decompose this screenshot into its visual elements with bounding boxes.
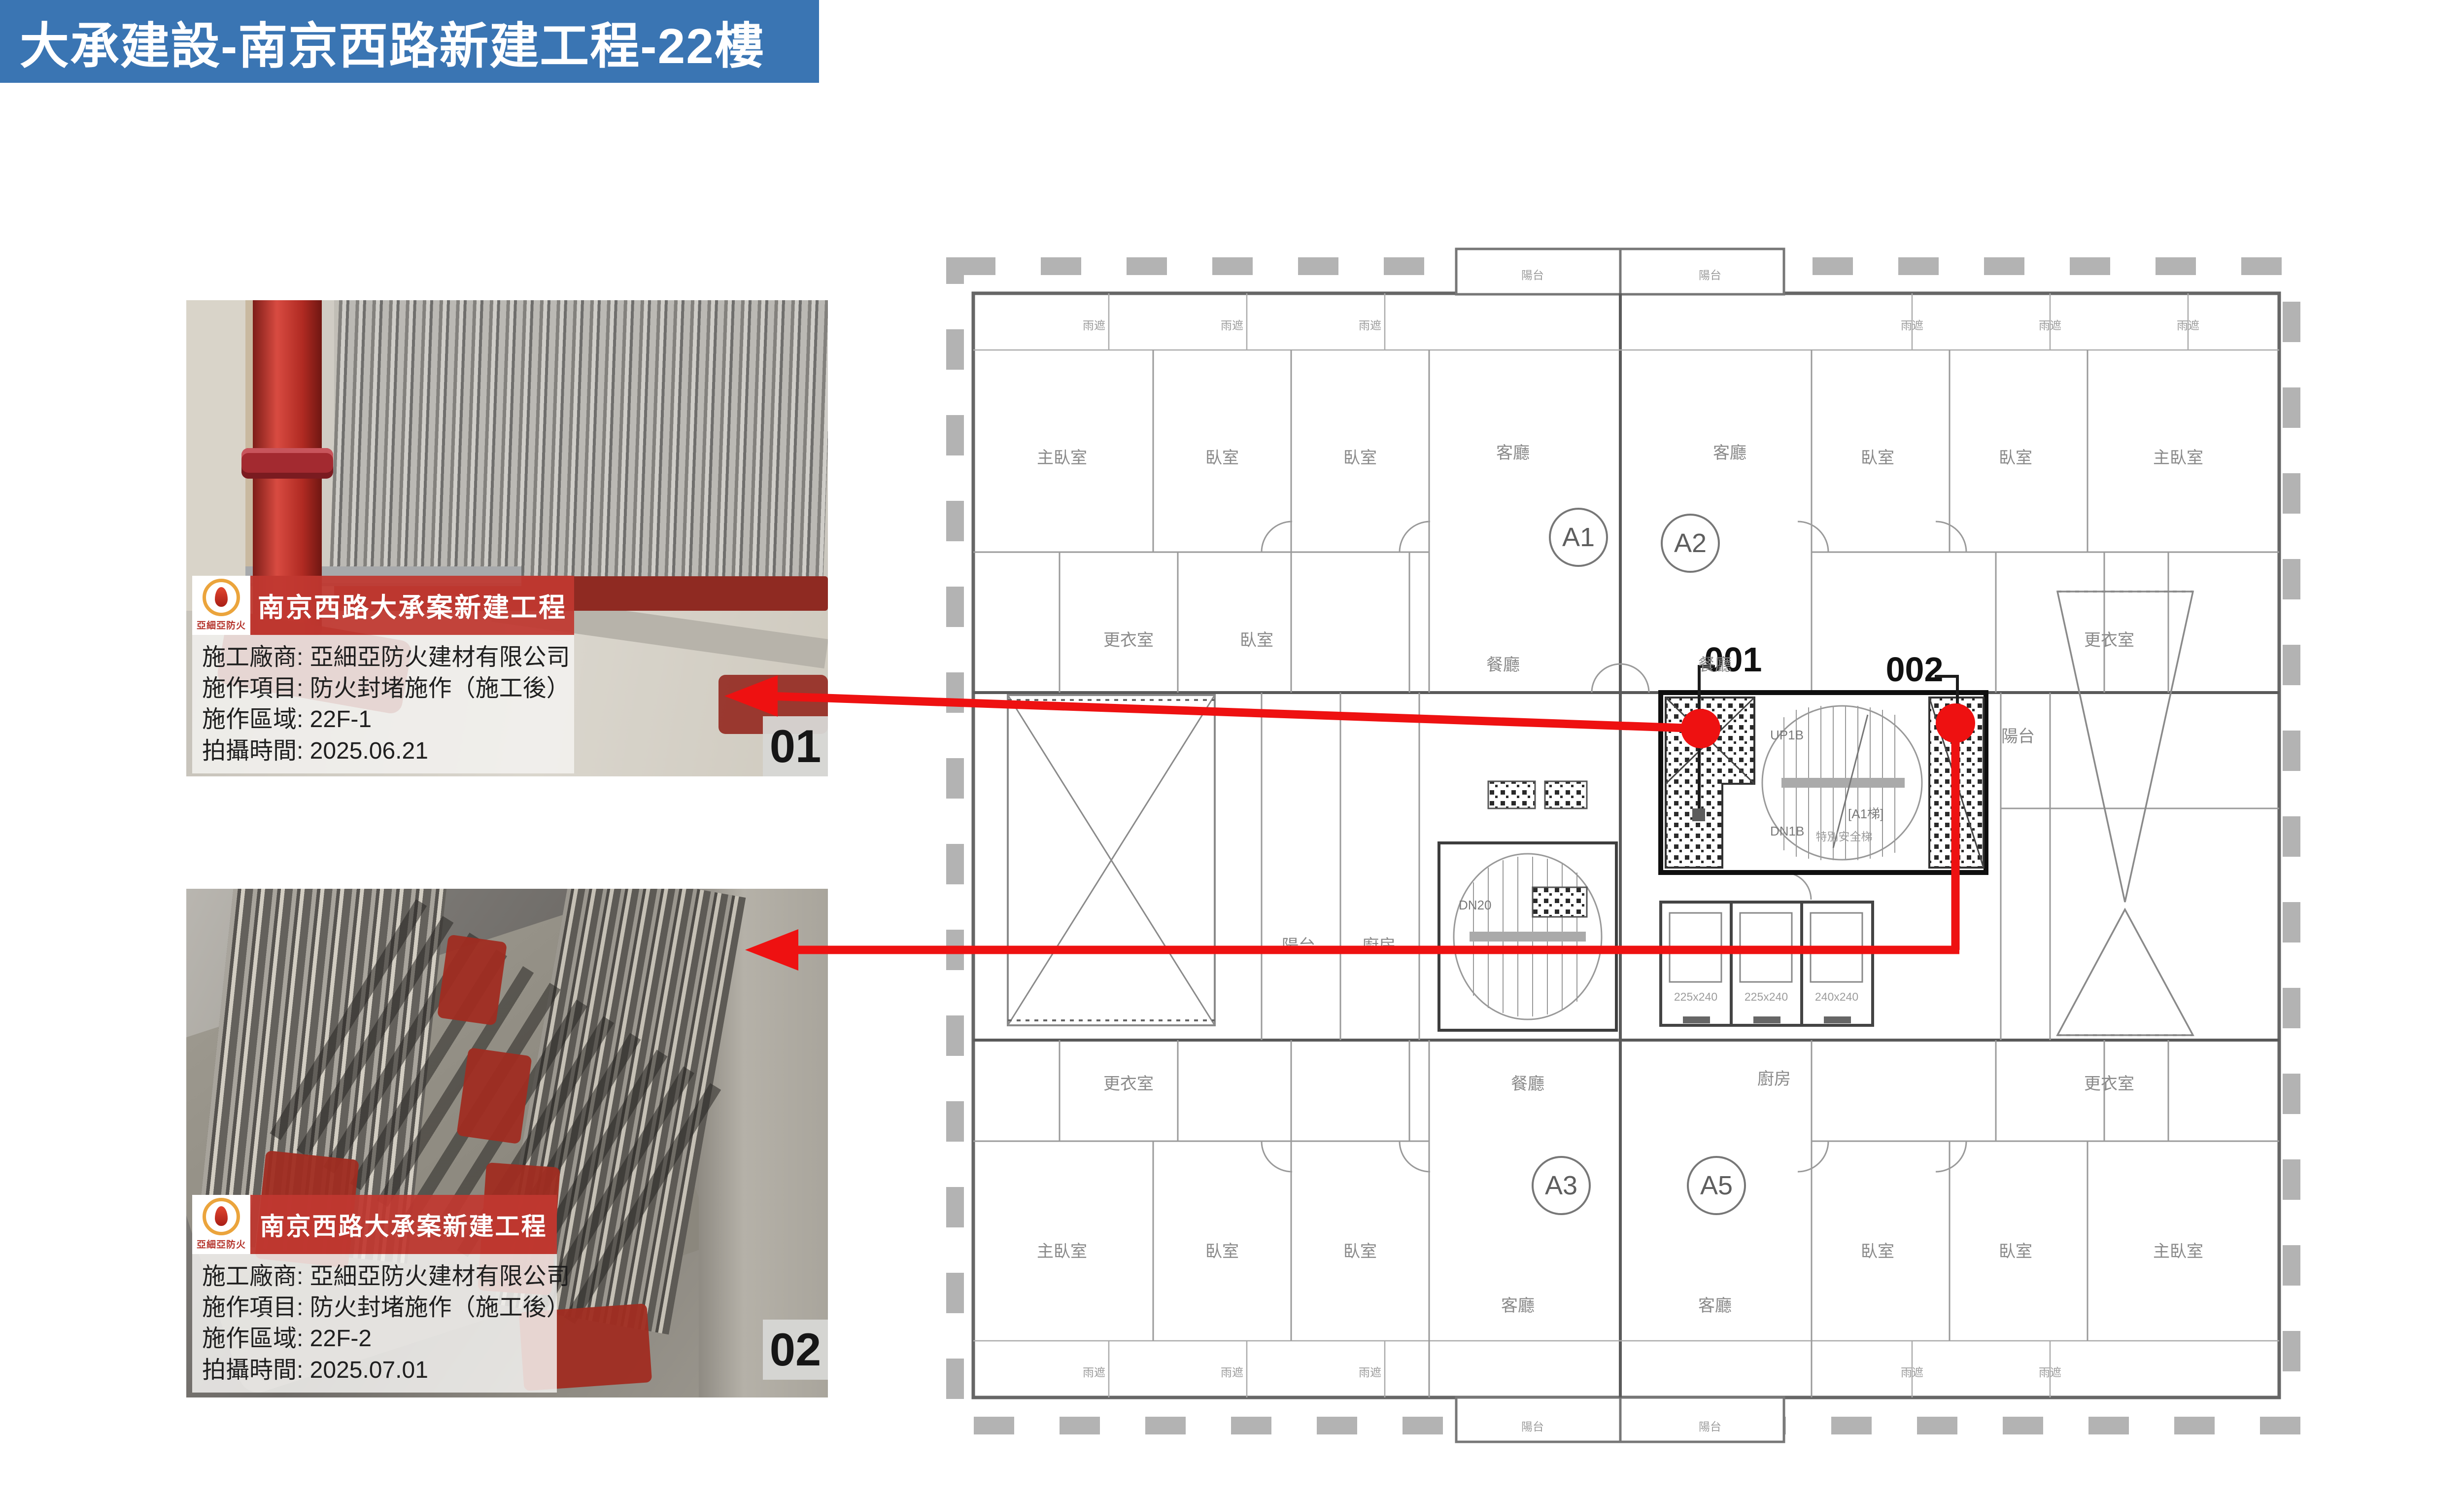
svg-text:客廳: 客廳 <box>1698 1296 1732 1315</box>
elevator-bank: 225x240 225x240 240x240 <box>1661 902 1873 1025</box>
svg-text:更衣室: 更衣室 <box>2084 1075 2134 1093</box>
svg-text:更衣室: 更衣室 <box>1103 1075 1154 1093</box>
svg-text:主臥室: 主臥室 <box>1037 1242 1087 1261</box>
title-banner: 大承建設-南京西路新建工程-22樓 <box>0 0 819 83</box>
page-title: 大承建設-南京西路新建工程-22樓 <box>20 6 765 77</box>
info-row-work-item: 施作項目: 防火封堵施作（施工後） <box>202 1292 547 1323</box>
svg-text:臥室: 臥室 <box>1999 1242 2032 1261</box>
svg-text:更衣室: 更衣室 <box>1103 631 1154 650</box>
stair-core-1: UP1B DN1B [A1梯] 特別安全梯 <box>1661 693 1986 873</box>
unit-a3: A3 <box>1545 1171 1577 1200</box>
flame-logo-icon <box>203 579 240 616</box>
stair-label: DN1B <box>1770 824 1804 838</box>
logo-brand-text: 亞細亞防火 <box>197 1237 246 1251</box>
stair-name: [A1梯] <box>1848 806 1883 821</box>
svg-text:雨遮: 雨遮 <box>2039 319 2061 332</box>
svg-text:主臥室: 主臥室 <box>2153 1242 2203 1261</box>
flame-logo-icon <box>203 1198 240 1235</box>
info-row-contractor: 施工廠商: 亞細亞防火建材有限公司 <box>202 1261 547 1292</box>
svg-text:雨遮: 雨遮 <box>2177 319 2199 332</box>
svg-text:陽台: 陽台 <box>1521 1420 1544 1433</box>
asia-fire-logo: 亞細亞防火 <box>192 1195 250 1254</box>
stair-core-2: DN20 UP20 <box>1439 843 1616 1030</box>
stair-note: 特別安全梯 <box>1816 830 1873 843</box>
unit-a2: A2 <box>1674 528 1707 558</box>
svg-text:陽台: 陽台 <box>1521 269 1544 281</box>
photo-02-info-tag: 亞細亞防火 南京西路大承案新建工程 施工廠商: 亞細亞防火建材有限公司 施作項目… <box>192 1195 557 1393</box>
pipe-bundle <box>329 300 828 584</box>
svg-text:陽台: 陽台 <box>2001 727 2035 746</box>
svg-text:餐廳: 餐廳 <box>1698 656 1732 674</box>
svg-text:廚房: 廚房 <box>1757 1070 1791 1088</box>
info-row-work-item: 施作項目: 防火封堵施作（施工後） <box>202 673 564 704</box>
photo-02-number-badge: 02 <box>763 1320 828 1380</box>
svg-text:雨遮: 雨遮 <box>1221 1366 1243 1379</box>
svg-text:臥室: 臥室 <box>1861 449 1894 467</box>
project-title: 南京西路大承案新建工程 <box>250 576 574 635</box>
floor-plan: UP1B DN1B [A1梯] 特別安全梯 001 002 DN20 <box>946 246 2306 1444</box>
svg-text:廚房: 廚房 <box>1362 937 1396 955</box>
slide-canvas: 大承建設-南京西路新建工程-22樓 亞細亞防火 南京西路大承案新建工程 施工廠商… <box>0 0 2464 1501</box>
svg-text:陽台: 陽台 <box>1699 1420 1721 1433</box>
elevator-size: 225x240 <box>1674 990 1717 1003</box>
svg-text:臥室: 臥室 <box>1205 449 1239 467</box>
svg-text:雨遮: 雨遮 <box>1221 319 1243 332</box>
svg-text:客廳: 客廳 <box>1496 444 1530 462</box>
svg-text:臥室: 臥室 <box>1205 1242 1239 1261</box>
asia-fire-logo: 亞細亞防火 <box>192 576 250 635</box>
svg-text:雨遮: 雨遮 <box>2039 1366 2061 1379</box>
svg-text:臥室: 臥室 <box>1999 449 2032 467</box>
unit-a5: A5 <box>1700 1171 1733 1200</box>
stair-label: UP1B <box>1770 728 1804 742</box>
info-row-date: 拍攝時間: 2025.06.21 <box>202 735 564 767</box>
svg-text:主臥室: 主臥室 <box>1037 449 1087 467</box>
firestop-patch <box>437 934 507 1025</box>
svg-text:臥室: 臥室 <box>1343 449 1377 467</box>
svg-text:雨遮: 雨遮 <box>1901 1366 1923 1379</box>
photo-01: 亞細亞防火 南京西路大承案新建工程 施工廠商: 亞細亞防火建材有限公司 施作項目… <box>186 300 828 776</box>
elevator-size: 225x240 <box>1745 990 1788 1003</box>
svg-text:餐廳: 餐廳 <box>1511 1075 1544 1093</box>
svg-text:客廳: 客廳 <box>1501 1296 1535 1315</box>
svg-text:雨遮: 雨遮 <box>1359 1366 1381 1379</box>
elevator-size: 240x240 <box>1815 990 1858 1003</box>
logo-brand-text: 亞細亞防火 <box>197 618 246 631</box>
unit-a1: A1 <box>1562 523 1595 552</box>
svg-text:雨遮: 雨遮 <box>1083 1366 1105 1379</box>
svg-text:陽台: 陽台 <box>1699 269 1721 281</box>
building-outline <box>973 293 2279 1397</box>
svg-text:主臥室: 主臥室 <box>2153 449 2203 467</box>
firestop-patch <box>456 1047 532 1144</box>
svg-text:雨遮: 雨遮 <box>1901 319 1923 332</box>
svg-text:客廳: 客廳 <box>1713 444 1746 462</box>
photo-01-number-badge: 01 <box>763 716 828 776</box>
info-row-contractor: 施工廠商: 亞細亞防火建材有限公司 <box>202 642 564 673</box>
pipe-coupling <box>241 448 333 479</box>
svg-text:陽台: 陽台 <box>1282 937 1315 955</box>
project-title: 南京西路大承案新建工程 <box>250 1195 557 1254</box>
svg-text:雨遮: 雨遮 <box>1359 319 1381 332</box>
svg-text:臥室: 臥室 <box>1861 1242 1894 1261</box>
svg-text:更衣室: 更衣室 <box>2084 631 2134 650</box>
svg-text:雨遮: 雨遮 <box>1083 319 1105 332</box>
info-row-area: 施作區域: 22F-2 <box>202 1323 547 1354</box>
info-row-area: 施作區域: 22F-1 <box>202 704 564 735</box>
svg-text:臥室: 臥室 <box>1240 631 1273 650</box>
marker-002: 002 <box>1886 650 1944 689</box>
svg-text:臥室: 臥室 <box>1343 1242 1377 1261</box>
info-row-date: 拍攝時間: 2025.07.01 <box>202 1355 547 1386</box>
svg-text:餐廳: 餐廳 <box>1486 656 1520 674</box>
photo-02: 亞細亞防火 南京西路大承案新建工程 施工廠商: 亞細亞防火建材有限公司 施作項目… <box>186 889 828 1397</box>
stair-label: DN20 <box>1459 898 1491 912</box>
photo-01-info-tag: 亞細亞防火 南京西路大承案新建工程 施工廠商: 亞細亞防火建材有限公司 施作項目… <box>192 576 574 773</box>
